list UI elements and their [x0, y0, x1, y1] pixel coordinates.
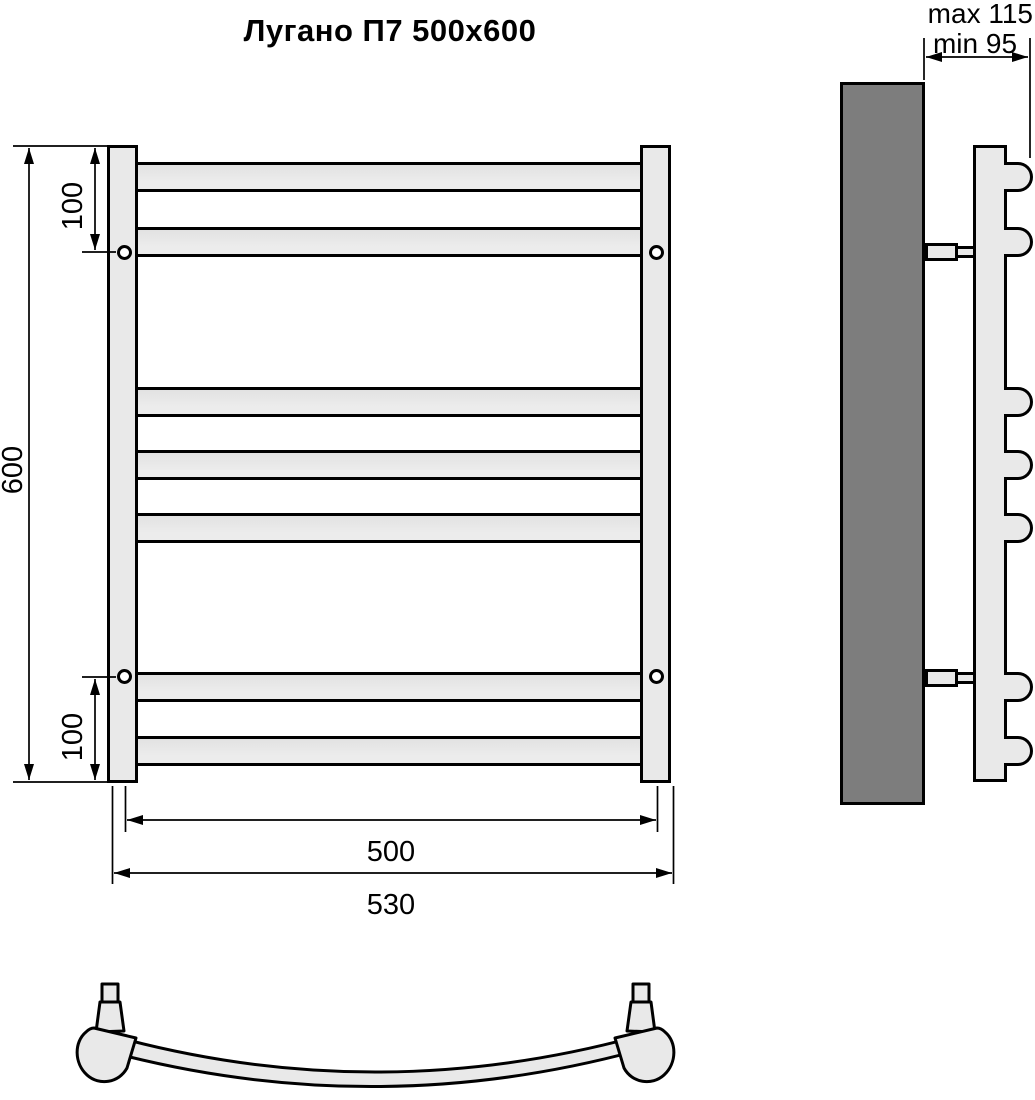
side-bracket-bottom — [925, 669, 958, 687]
side-rung-end-6 — [1004, 672, 1033, 702]
mount-hole-bottom-right — [649, 669, 664, 684]
bottom-view — [77, 984, 674, 1087]
side-wall — [840, 82, 925, 805]
dim-label-height-600: 600 — [0, 430, 28, 510]
bottom-left-fitting — [77, 984, 136, 1082]
dim-label-offset-top-100: 100 — [58, 166, 88, 246]
front-rung-1 — [135, 162, 643, 192]
bottom-right-fitting — [615, 984, 674, 1082]
front-rung-5 — [135, 513, 643, 543]
front-rung-2 — [135, 227, 643, 257]
mount-hole-top-right — [649, 245, 664, 260]
dim-label-min-95: min 95 — [885, 30, 1035, 58]
front-rung-3 — [135, 387, 643, 417]
mount-hole-bottom-left — [117, 669, 132, 684]
side-rung-end-1 — [1004, 162, 1033, 192]
bottom-curved-bar — [110, 1034, 654, 1087]
mount-hole-top-left — [117, 245, 132, 260]
front-left-post — [107, 145, 138, 783]
side-rung-end-7 — [1004, 736, 1033, 766]
side-bracket-top — [925, 243, 958, 261]
side-rung-end-3 — [1004, 387, 1033, 417]
dim-label-mount-width-500: 500 — [321, 837, 461, 867]
side-rung-end-4 — [1004, 450, 1033, 480]
side-vertical-tube — [973, 145, 1007, 782]
front-rung-7 — [135, 736, 643, 766]
dim-label-overall-width-530: 530 — [321, 890, 461, 920]
front-right-post — [640, 145, 671, 783]
side-rung-end-5 — [1004, 513, 1033, 543]
front-rung-4 — [135, 450, 643, 480]
drawing-title: Лугано П7 500x600 — [140, 13, 640, 49]
front-rung-6 — [135, 672, 643, 702]
side-rung-end-2 — [1004, 227, 1033, 257]
technical-drawing-page: { "title": "Лугано П7 500x600", "front_v… — [0, 0, 1035, 1100]
dim-label-max-115: max 115 — [853, 0, 1033, 28]
dim-label-offset-bottom-100: 100 — [58, 697, 88, 777]
